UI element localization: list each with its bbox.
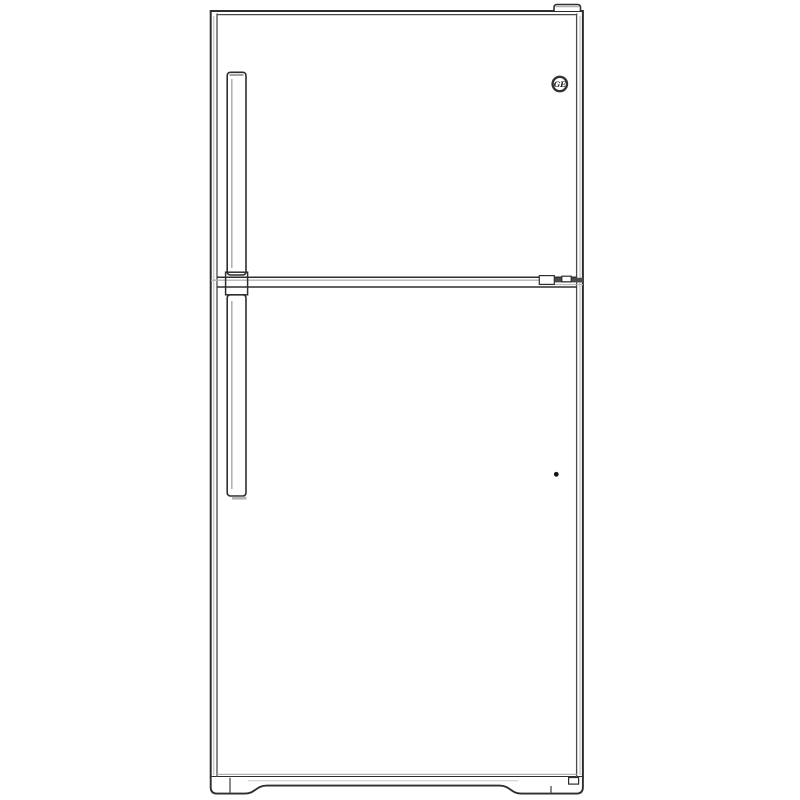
freezer-handle-bar	[227, 72, 246, 275]
top-hinge-cap	[554, 5, 581, 12]
ge-monogram-icon: GE	[553, 77, 567, 91]
base-kickplate	[211, 774, 583, 793]
fresh-food-handle-bar	[227, 295, 246, 496]
cabinet	[211, 11, 583, 777]
right-hinge-foot-notch	[569, 778, 579, 785]
door-plug-dot-icon	[554, 472, 559, 477]
cabinet-outline	[211, 11, 583, 777]
fresh-food-handle	[227, 295, 246, 500]
freezer-handle	[227, 72, 246, 275]
product-image-canvas: GE	[0, 0, 800, 800]
center-hinge-bracket	[539, 276, 554, 285]
top-hinge-cover	[554, 5, 581, 12]
base-outline	[211, 777, 583, 794]
fresh-food-handle-cap-shadow	[232, 497, 247, 500]
refrigerator-line-drawing: GE	[0, 0, 800, 800]
refrigerator-svg: GE	[0, 0, 800, 800]
badge-letters: GE	[554, 80, 566, 89]
center-hinge-pin	[562, 276, 571, 282]
